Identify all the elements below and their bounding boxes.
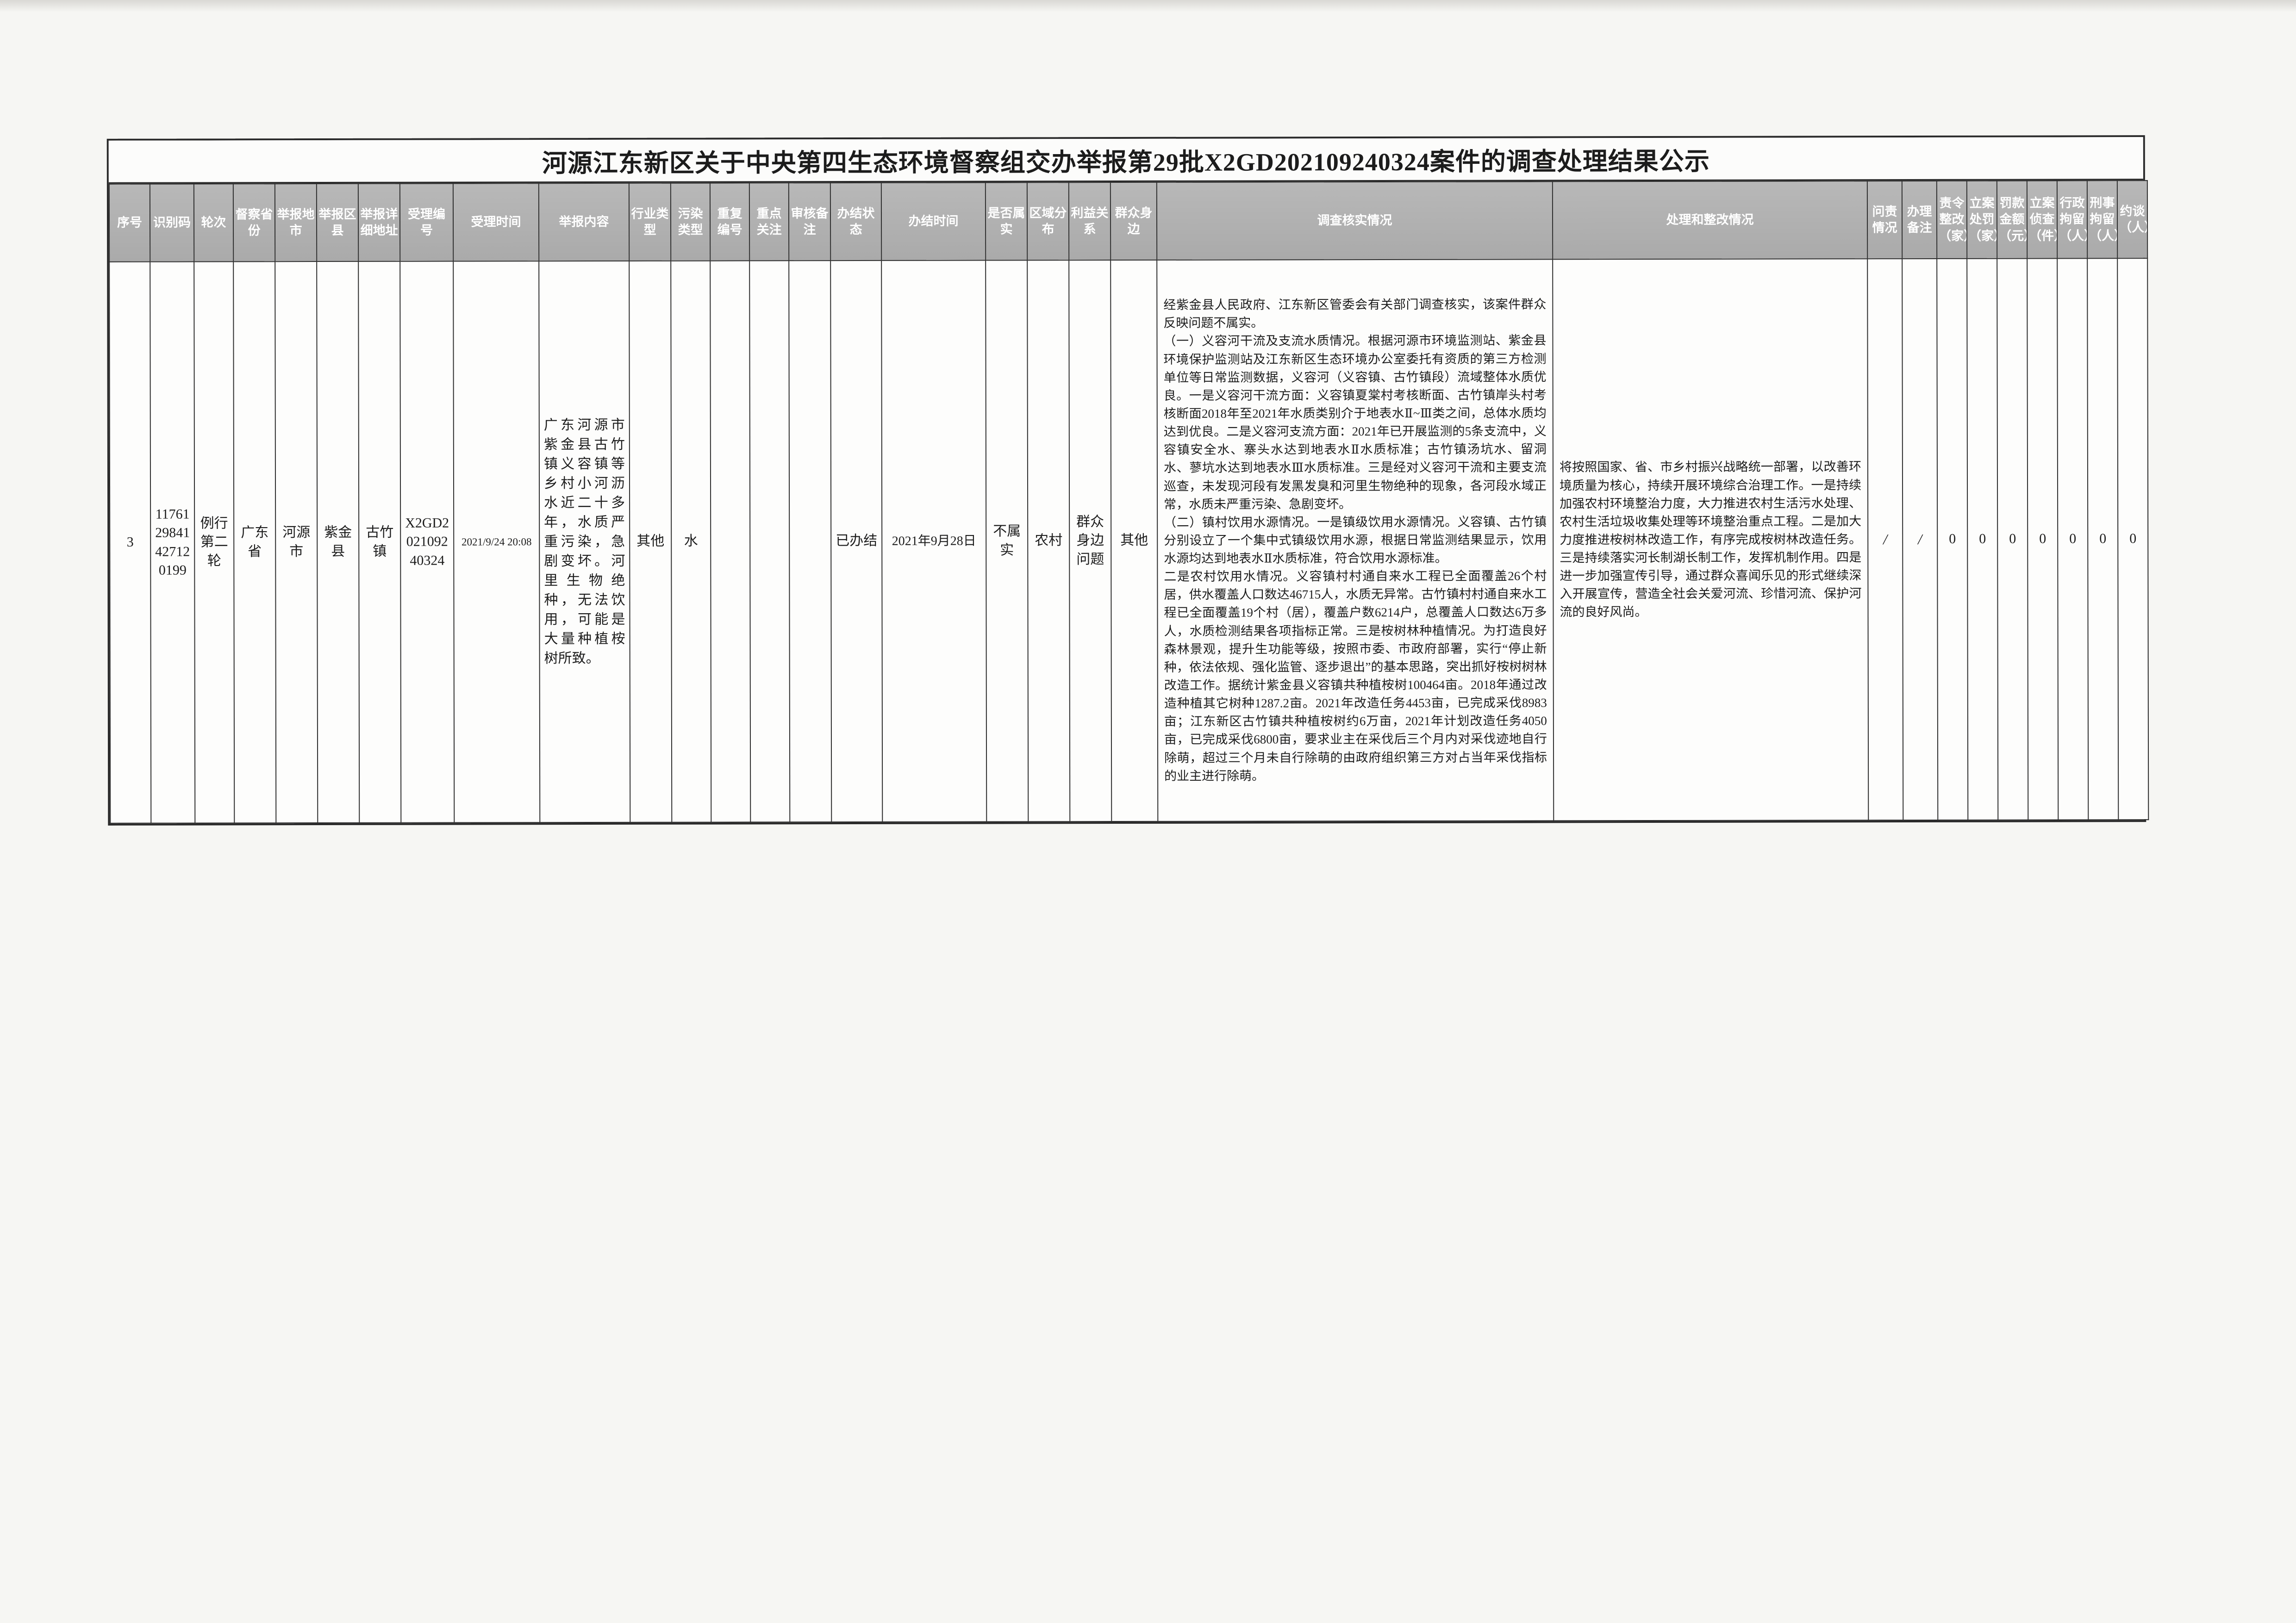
cell-industry-type: 其他 (629, 261, 672, 822)
header-investigation-result: 调查核实情况 (1157, 181, 1553, 260)
header-handling-remark: 办理备注 (1902, 181, 1937, 259)
cell-fine-amount: 0 (1997, 259, 2028, 820)
cell-investigation-result: 经紫金县人民政府、江东新区管委会有关部门调查核实，该案件群众反映问题不属实。 （… (1157, 259, 1554, 821)
header-province: 督察省份 (233, 184, 275, 261)
cell-county: 紫金县 (317, 261, 359, 823)
header-key-focus: 重点关注 (749, 183, 789, 261)
header-county: 举报区县 (317, 184, 358, 261)
cell-handling-remark: / (1902, 259, 1938, 820)
cell-admin-detention: 0 (2057, 258, 2088, 820)
header-detail-address: 举报详细地址 (358, 184, 400, 261)
header-inspection-round: 轮次 (194, 184, 233, 261)
header-region-type: 区域分布 (1027, 182, 1069, 260)
header-handling-rectification: 处理和整改情况 (1553, 181, 1867, 259)
header-interest-relation: 利益关系 (1069, 182, 1111, 260)
cell-ordered-rectify: 0 (1937, 259, 1968, 820)
page-title: 河源江东新区关于中央第四生态环境督察组交办举报第29批X2GD202109240… (542, 140, 1710, 179)
header-interview: 约谈（人） (2117, 180, 2147, 258)
cell-completion-date: 2021年9月28日 (881, 261, 986, 822)
header-case-punishment: 立案处罚（家） (1967, 181, 1997, 259)
cell-report-content: 广东河源市紫金县古竹镇义容镇等乡村小河沥水近二十多年，水质严重污染，急剧变坏。河… (539, 261, 630, 822)
cell-case-investigation: 0 (2027, 258, 2058, 820)
header-serial-number: 序号 (109, 184, 150, 262)
cell-verified: 不属实 (986, 260, 1028, 821)
table-row: 3 1176129841427120199 例行第二轮 广东省 河源市 紫金县 … (109, 258, 2148, 823)
results-table: 序号 识别码 轮次 督察省份 举报地市 举报区县 举报详细地址 受理编号 受理时… (109, 180, 2149, 824)
cell-interest-relation: 群众身边问题 (1069, 260, 1111, 821)
header-criminal-detention: 刑事拘留（人） (2087, 180, 2117, 258)
cell-inspection-round: 例行第二轮 (194, 261, 234, 823)
header-verified: 是否属实 (986, 182, 1027, 260)
cell-mass-issue: 其他 (1111, 260, 1158, 821)
cell-duplicate-number (710, 261, 750, 822)
header-admin-detention: 行政拘留（人） (2057, 180, 2087, 258)
scan-edge-shading (0, 0, 2296, 12)
cell-serial-number: 3 (109, 262, 151, 823)
header-identifier-code: 识别码 (150, 184, 194, 262)
cell-pollution-type: 水 (671, 261, 711, 822)
header-city: 举报地市 (275, 184, 317, 261)
title-bar: 河源江东新区关于中央第四生态环境督察组交办举报第29批X2GD202109240… (109, 137, 2143, 184)
cell-province: 广东省 (233, 261, 276, 823)
cell-key-focus (749, 261, 790, 822)
header-completion-status: 办结状态 (830, 183, 881, 261)
header-acceptance-time: 受理时间 (453, 183, 539, 261)
announcement-sheet: 河源江东新区关于中央第四生态环境督察组交办举报第29批X2GD202109240… (107, 135, 2146, 826)
cell-identifier-code: 1176129841427120199 (150, 262, 195, 823)
cell-detail-address: 古竹镇 (358, 261, 401, 823)
cell-case-punishment: 0 (1967, 259, 1998, 820)
cell-interview: 0 (2117, 258, 2148, 820)
header-pollution-type: 污染类型 (671, 183, 710, 261)
header-industry-type: 行业类型 (629, 183, 671, 261)
cell-accountability: / (1867, 259, 1903, 820)
header-fine-amount: 罚款金额（元） (1997, 181, 2027, 259)
header-case-investigation: 立案侦查（件） (2027, 180, 2057, 258)
header-report-content: 举报内容 (539, 183, 629, 261)
header-mass-issue: 群众身边 (1111, 182, 1157, 260)
header-duplicate-number: 重复编号 (710, 183, 749, 261)
header-ordered-rectify: 责令整改（家） (1937, 181, 1967, 259)
header-review-remark: 审核备注 (789, 183, 830, 261)
cell-review-remark (789, 261, 831, 822)
cell-completion-status: 已办结 (830, 261, 882, 822)
cell-region-type: 农村 (1027, 260, 1070, 821)
cell-city: 河源市 (275, 261, 318, 823)
cell-handling-rectification: 将按照国家、省、市乡村振兴战略统一部署，以改善环境质量为核心，持续开展环境综合治… (1553, 259, 1868, 821)
cell-criminal-detention: 0 (2087, 258, 2118, 820)
table-header-row: 序号 识别码 轮次 督察省份 举报地市 举报区县 举报详细地址 受理编号 受理时… (109, 180, 2147, 262)
cell-acceptance-time: 2021/9/24 20:08 (453, 261, 540, 822)
header-acceptance-number: 受理编号 (400, 184, 453, 261)
header-completion-date: 办结时间 (881, 183, 986, 261)
header-accountability: 问责情况 (1867, 181, 1902, 259)
cell-acceptance-number: X2GD202109240324 (400, 261, 454, 823)
